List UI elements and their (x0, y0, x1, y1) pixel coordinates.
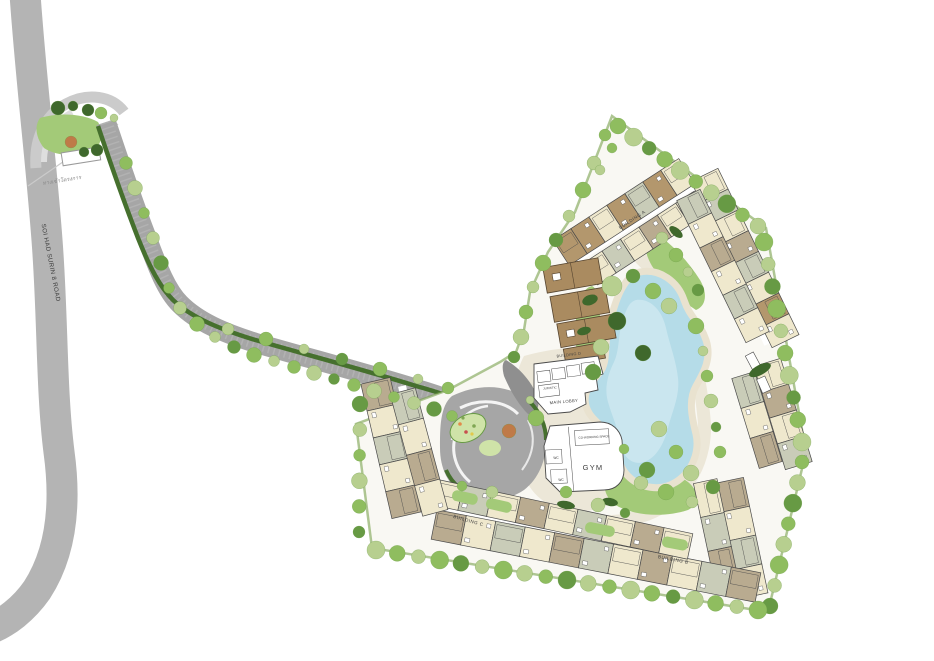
tree (718, 195, 736, 213)
public-road (0, 0, 62, 628)
tree (526, 396, 534, 404)
tree (427, 402, 442, 417)
tree (656, 232, 668, 244)
tree (210, 332, 221, 343)
gym-label: GYM (583, 463, 604, 472)
tree (657, 151, 673, 167)
tree (599, 129, 611, 141)
tree (528, 410, 544, 426)
site-plan-canvas: SOI HAD SURIN 8 ROAD ทางเข้าโครงการ BUIL… (0, 0, 934, 661)
tree (502, 424, 516, 438)
tree (519, 305, 533, 319)
tree (642, 141, 656, 155)
unit-balcony (422, 442, 427, 447)
tree (457, 481, 467, 491)
unit-balcony (746, 528, 751, 533)
unit-balcony (700, 583, 706, 588)
tree (91, 144, 103, 156)
tree (508, 351, 520, 363)
wc-label: WC (553, 456, 559, 460)
tree (348, 379, 361, 392)
tree (683, 465, 699, 481)
tree (351, 473, 367, 489)
tree (698, 346, 708, 356)
tree (453, 555, 469, 571)
tree (730, 600, 744, 614)
loop-island-lawn (479, 440, 501, 456)
unit-balcony (540, 505, 545, 510)
tree (780, 366, 798, 384)
tree (764, 278, 780, 294)
tree (413, 374, 423, 384)
tree (558, 571, 576, 589)
tree (190, 317, 205, 332)
tree (714, 446, 726, 458)
unit-balcony (722, 539, 727, 544)
tree (768, 300, 786, 318)
unit-balcony (486, 524, 491, 529)
unit-balcony (523, 549, 529, 554)
tree (513, 329, 529, 345)
tree (353, 526, 365, 538)
unit-balcony (438, 503, 443, 508)
tree (635, 345, 651, 361)
tree (247, 348, 262, 363)
unit-balcony (545, 535, 550, 540)
tree (68, 101, 78, 111)
building-unit (515, 497, 549, 529)
tree (527, 281, 539, 293)
unit-balcony (372, 412, 377, 418)
tree (120, 157, 133, 170)
tree (669, 248, 683, 262)
unit-balcony (705, 519, 710, 525)
tree (593, 339, 609, 355)
tree (704, 394, 718, 408)
tree (563, 210, 575, 222)
tree (750, 218, 766, 234)
tree (686, 496, 698, 508)
unit-balcony (655, 530, 660, 535)
tree (777, 345, 793, 361)
unit-balcony (582, 561, 588, 566)
tree (139, 208, 150, 219)
tree (82, 104, 94, 116)
unit-balcony (464, 538, 470, 543)
tree (585, 364, 601, 380)
tree (354, 449, 366, 461)
tree (431, 551, 449, 569)
tree (755, 233, 773, 251)
tree (352, 396, 368, 412)
tree (708, 595, 724, 611)
tree (689, 175, 703, 189)
tree (575, 182, 591, 198)
unit-balcony (597, 518, 602, 523)
tree (703, 185, 719, 201)
tree (666, 590, 680, 604)
tree (651, 421, 667, 437)
tree (626, 269, 640, 283)
tree (549, 233, 563, 247)
tree (602, 580, 616, 594)
tree (517, 565, 533, 581)
tree (79, 147, 89, 157)
tree (389, 545, 405, 561)
unit-balcony (393, 424, 398, 429)
tree (353, 423, 367, 437)
building-unit (696, 561, 731, 596)
tree (560, 486, 572, 498)
tree (373, 362, 387, 376)
tree (661, 298, 677, 314)
tree (539, 570, 553, 584)
tree (288, 361, 301, 374)
tree (793, 433, 811, 451)
tree (620, 508, 630, 518)
building-unit (578, 538, 613, 573)
tree (761, 257, 775, 271)
tree (65, 136, 77, 148)
tree (595, 165, 605, 175)
tree (639, 462, 655, 478)
unit-balcony (722, 569, 727, 574)
unit-balcony (405, 478, 410, 483)
tree (174, 302, 187, 315)
tree (110, 114, 118, 122)
unit-balcony (462, 503, 468, 508)
tree (447, 411, 458, 422)
tree (608, 312, 626, 330)
tree (768, 578, 782, 592)
building-unit (520, 527, 555, 562)
tree (442, 382, 454, 394)
tree (625, 128, 643, 146)
tree (701, 370, 713, 382)
tree (685, 591, 703, 609)
tree (749, 601, 767, 619)
tree (610, 118, 626, 134)
tree (336, 353, 348, 365)
unit-balcony (384, 466, 389, 472)
tree (774, 324, 788, 338)
tree (486, 486, 498, 498)
tree (95, 107, 107, 119)
tree (789, 475, 805, 491)
tree (795, 455, 809, 469)
tree (228, 341, 241, 354)
tree (408, 397, 421, 410)
tree (671, 161, 689, 179)
tree (352, 499, 366, 513)
unit-balcony (727, 513, 732, 519)
tree (128, 181, 143, 196)
tree (580, 575, 596, 591)
tree (711, 422, 721, 432)
tree (787, 391, 801, 405)
tree (367, 384, 382, 399)
tree (475, 560, 489, 574)
tree (164, 283, 175, 294)
tree (307, 366, 322, 381)
tree (658, 484, 674, 500)
tree (269, 356, 280, 367)
tree (411, 550, 425, 564)
tree (692, 284, 704, 296)
unit-balcony (604, 547, 609, 552)
tree (622, 581, 640, 599)
tree (706, 480, 720, 494)
tree (51, 101, 65, 115)
tree (367, 541, 385, 559)
tree (688, 318, 704, 334)
building-unit (630, 522, 664, 554)
tree (222, 323, 234, 335)
tree (591, 498, 605, 512)
tree (645, 283, 661, 299)
tree (790, 412, 806, 428)
tree (619, 444, 629, 454)
wc-label: WC (558, 478, 564, 482)
tree (154, 256, 169, 271)
tree (494, 561, 512, 579)
tree (299, 344, 309, 354)
unit-balcony (519, 515, 525, 520)
tree (602, 276, 622, 296)
tree (669, 445, 683, 459)
unit-balcony (576, 528, 582, 533)
unit-balcony (758, 586, 763, 591)
tree (784, 494, 802, 512)
tree (329, 374, 340, 385)
tree (770, 556, 788, 574)
tree (535, 255, 551, 271)
unit-balcony (641, 572, 647, 577)
tree (776, 536, 792, 552)
tree (683, 267, 693, 277)
site-plan-svg: SOI HAD SURIN 8 ROAD ทางเข้าโครงการ BUIL… (0, 0, 934, 661)
unit-balcony (634, 540, 640, 545)
tree (259, 332, 273, 346)
tree (147, 232, 160, 245)
tree (607, 143, 617, 153)
tree (735, 208, 749, 222)
tree (634, 476, 648, 490)
tree (389, 392, 400, 403)
tree (644, 585, 660, 601)
tree (781, 517, 795, 531)
